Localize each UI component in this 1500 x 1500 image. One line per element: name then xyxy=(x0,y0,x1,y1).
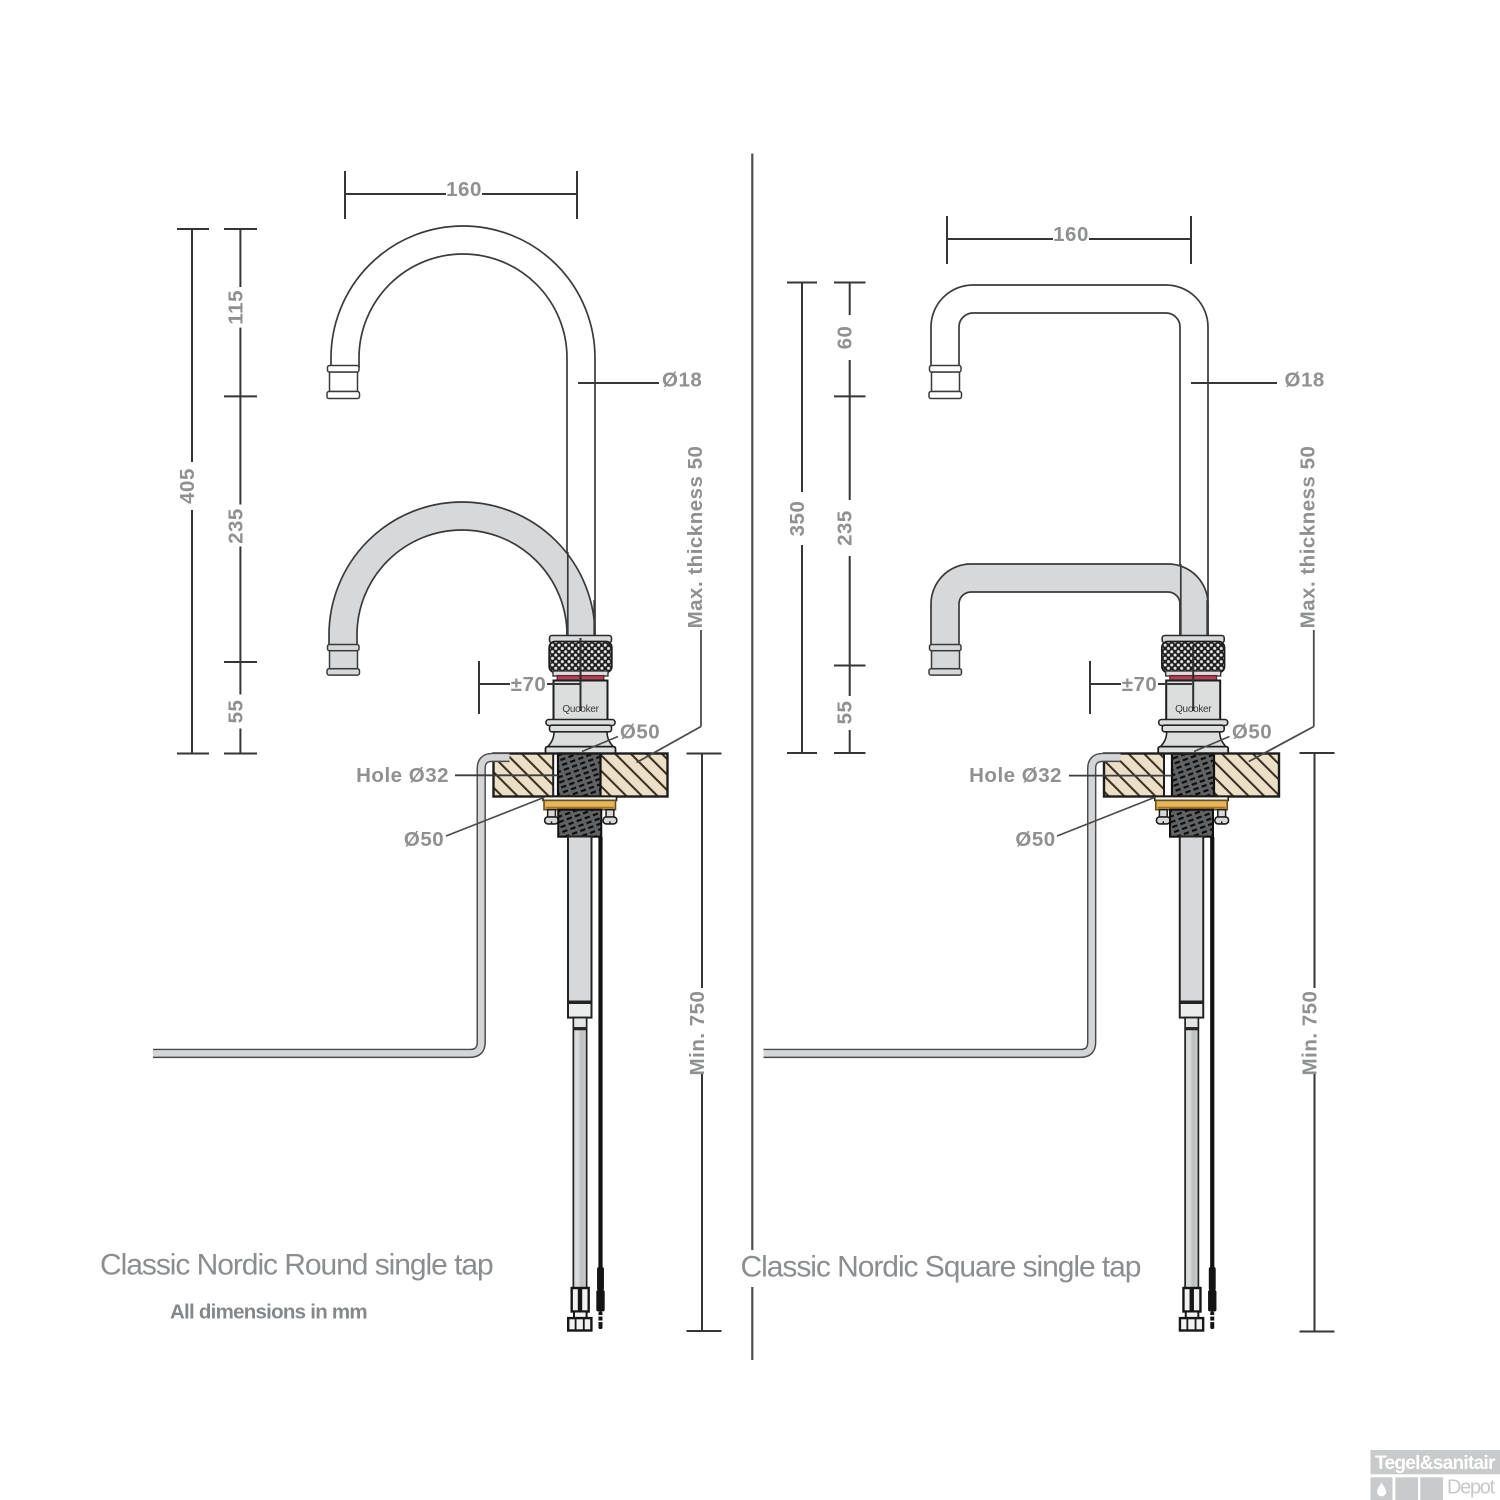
svg-text:Ø50: Ø50 xyxy=(1015,828,1055,851)
svg-text:±70: ±70 xyxy=(511,673,547,696)
svg-text:Hole Ø32: Hole Ø32 xyxy=(969,764,1062,787)
svg-text:235: 235 xyxy=(834,510,857,546)
svg-text:Hole Ø32: Hole Ø32 xyxy=(356,764,449,787)
svg-text:Min. 750: Min. 750 xyxy=(1299,991,1322,1076)
svg-text:Depot: Depot xyxy=(1447,1477,1496,1499)
svg-text:Ø50: Ø50 xyxy=(620,721,660,744)
svg-text:55: 55 xyxy=(834,701,857,725)
svg-text:350: 350 xyxy=(786,501,809,537)
svg-text:Max. thickness 50: Max. thickness 50 xyxy=(684,446,707,629)
svg-text:Tegel&sanitair: Tegel&sanitair xyxy=(1375,1453,1496,1474)
svg-text:Ø50: Ø50 xyxy=(404,828,444,851)
svg-text:±70: ±70 xyxy=(1122,673,1158,696)
svg-text:Ø50: Ø50 xyxy=(1232,721,1272,744)
svg-text:55: 55 xyxy=(224,700,247,724)
svg-text:Ø18: Ø18 xyxy=(662,369,702,392)
svg-text:Min. 750: Min. 750 xyxy=(686,991,709,1076)
svg-text:All dimensions in mm: All dimensions in mm xyxy=(170,1301,367,1324)
svg-text:160: 160 xyxy=(1053,223,1089,246)
svg-text:115: 115 xyxy=(224,290,247,325)
svg-text:60: 60 xyxy=(834,326,857,350)
svg-text:235: 235 xyxy=(224,508,247,544)
svg-text:Classic Nordic Square single t: Classic Nordic Square single tap xyxy=(741,1251,1141,1284)
svg-text:Classic Nordic Round single ta: Classic Nordic Round single tap xyxy=(100,1249,493,1282)
svg-text:160: 160 xyxy=(446,178,482,201)
svg-text:405: 405 xyxy=(176,468,199,504)
svg-text:Ø18: Ø18 xyxy=(1285,369,1325,392)
svg-text:Max. thickness 50: Max. thickness 50 xyxy=(1297,446,1320,629)
